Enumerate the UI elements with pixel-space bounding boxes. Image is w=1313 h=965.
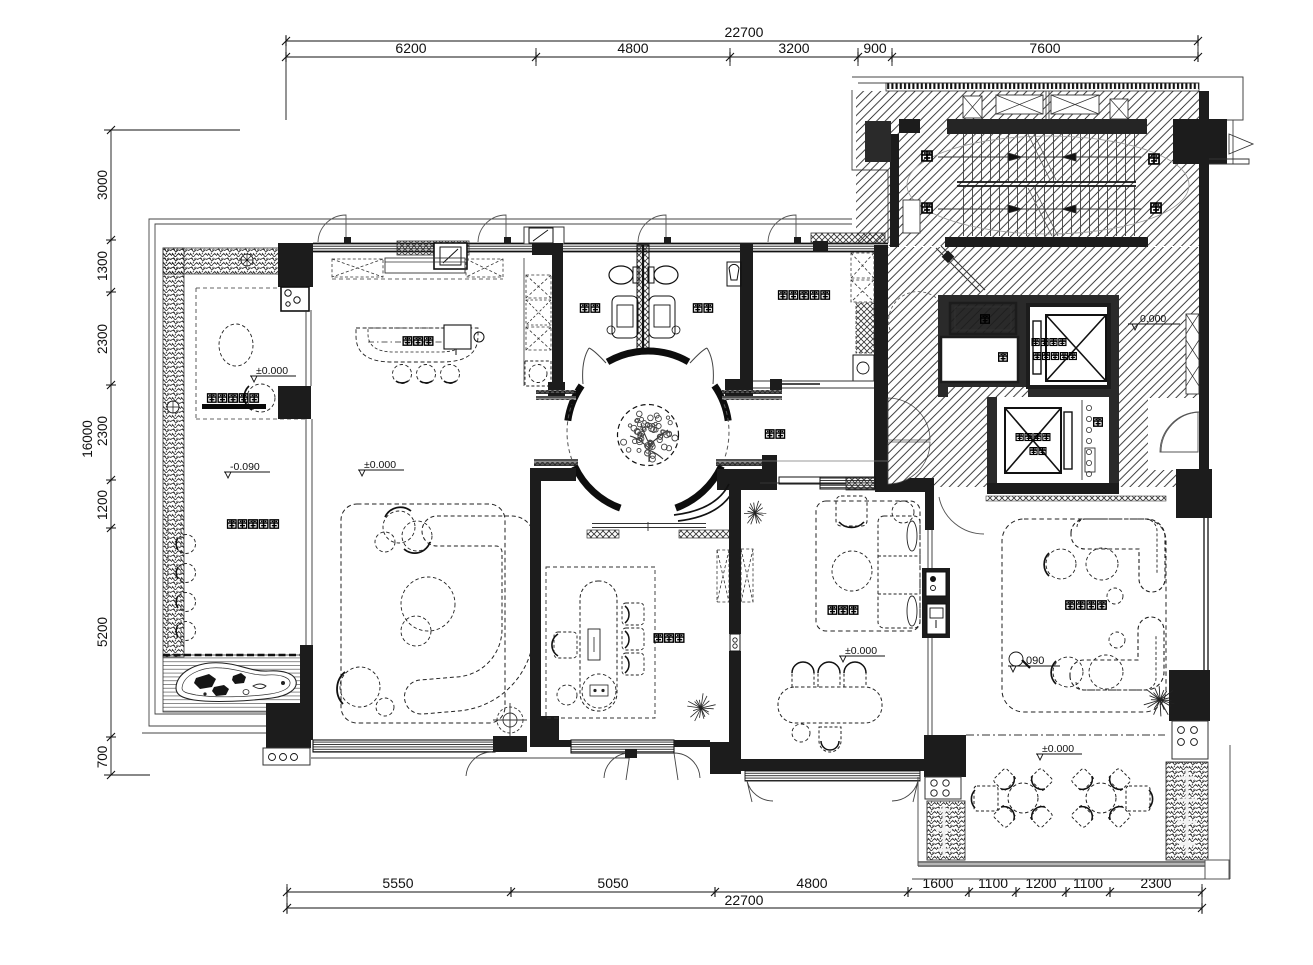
svg-text:900: 900 <box>863 40 887 56</box>
svg-text:4800: 4800 <box>617 40 648 56</box>
svg-text:±0.000: ±0.000 <box>845 645 877 657</box>
svg-text:2300: 2300 <box>95 416 110 446</box>
svg-text:16000: 16000 <box>80 420 95 458</box>
svg-text:-0.090: -0.090 <box>230 461 260 473</box>
svg-text:2300: 2300 <box>95 324 110 354</box>
svg-text:±0.000: ±0.000 <box>1042 743 1074 755</box>
svg-text:±0.000: ±0.000 <box>256 365 288 377</box>
svg-text:2300: 2300 <box>1140 875 1171 891</box>
svg-text:4800: 4800 <box>796 875 827 891</box>
svg-text:5550: 5550 <box>382 875 413 891</box>
svg-text:22700: 22700 <box>725 892 764 908</box>
svg-text:7600: 7600 <box>1029 40 1060 56</box>
svg-text:700: 700 <box>95 746 110 769</box>
svg-text:1200: 1200 <box>95 490 110 520</box>
svg-text:5050: 5050 <box>597 875 628 891</box>
svg-text:22700: 22700 <box>725 24 764 40</box>
svg-text:1600: 1600 <box>922 875 953 891</box>
svg-text:3000: 3000 <box>95 170 110 200</box>
svg-text:1100: 1100 <box>978 875 1008 891</box>
svg-text:0.000: 0.000 <box>1140 313 1166 325</box>
svg-text:3200: 3200 <box>778 40 809 56</box>
svg-text:1300: 1300 <box>95 251 110 281</box>
svg-text:±0.000: ±0.000 <box>364 459 396 471</box>
svg-text:1200: 1200 <box>1025 875 1056 891</box>
svg-text:5200: 5200 <box>95 617 110 647</box>
svg-text:6200: 6200 <box>395 40 426 56</box>
svg-text:1100: 1100 <box>1073 875 1103 891</box>
